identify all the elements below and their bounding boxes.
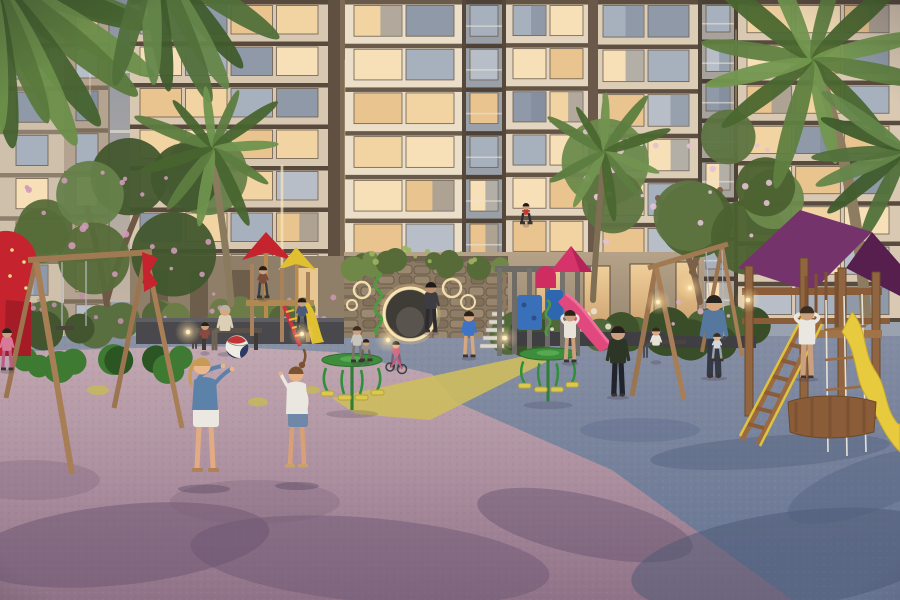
vignette-overlay bbox=[0, 0, 900, 600]
scene-svg bbox=[0, 0, 900, 600]
courtyard-playground-render bbox=[0, 0, 900, 600]
